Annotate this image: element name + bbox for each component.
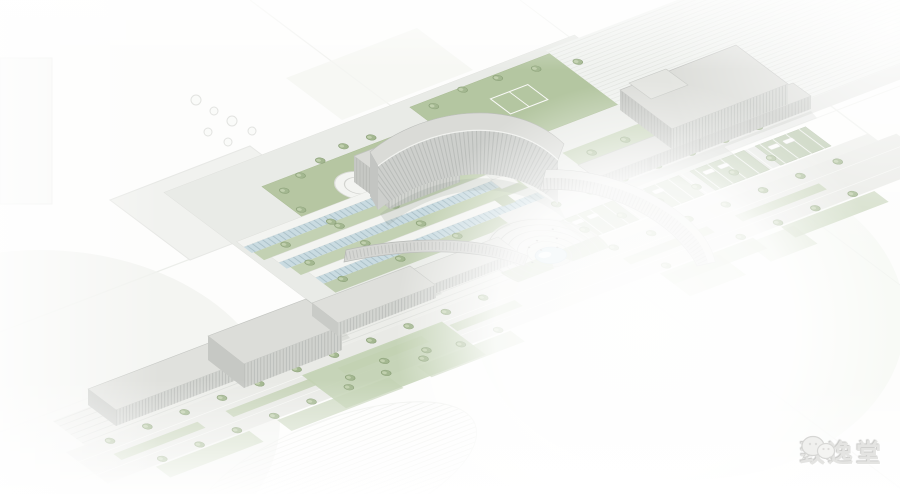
wechat-bubbles-icon bbox=[800, 434, 836, 464]
ghost-trees bbox=[191, 95, 256, 146]
architectural-rendering: 致逸堂 bbox=[0, 0, 900, 494]
site-plan-canvas bbox=[0, 0, 900, 494]
watermark: 致逸堂 bbox=[800, 434, 884, 470]
